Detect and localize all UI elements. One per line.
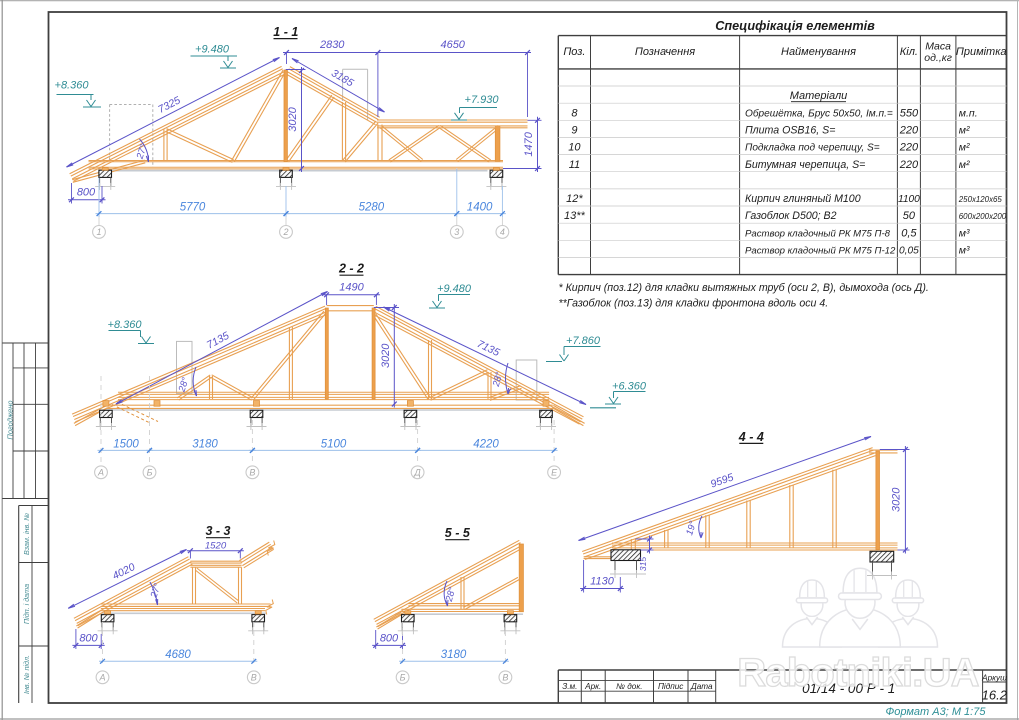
svg-text:А: А xyxy=(98,673,105,683)
svg-text:+7.930: +7.930 xyxy=(465,94,500,106)
svg-text:А: А xyxy=(97,468,104,478)
svg-text:В: В xyxy=(249,468,255,478)
svg-text:3180: 3180 xyxy=(441,649,467,661)
svg-text:Позначення: Позначення xyxy=(635,46,695,58)
svg-text:50: 50 xyxy=(903,210,916,222)
svg-text:од.,кг: од.,кг xyxy=(924,52,952,64)
svg-text:5 - 5: 5 - 5 xyxy=(445,526,471,540)
svg-text:Погоджено: Погоджено xyxy=(5,400,14,439)
svg-text:Маса: Маса xyxy=(925,41,951,53)
svg-text:13**: 13** xyxy=(564,210,586,222)
svg-text:Формат А3; М 1:75: Формат А3; М 1:75 xyxy=(886,706,987,718)
svg-text:3020: 3020 xyxy=(891,487,903,512)
svg-text:Rabotniki.UA: Rabotniki.UA xyxy=(737,651,979,695)
svg-text:2 - 2: 2 - 2 xyxy=(338,262,364,276)
svg-text:0,05: 0,05 xyxy=(899,246,919,257)
svg-text:5100: 5100 xyxy=(321,438,347,450)
svg-text:Газоблок D500; В2: Газоблок D500; В2 xyxy=(745,210,837,222)
svg-text:* Кирпич (поз.12) для кладки в: * Кирпич (поз.12) для кладки вытяжных тр… xyxy=(559,282,929,294)
svg-text:Підпис: Підпис xyxy=(658,682,683,691)
svg-text:10: 10 xyxy=(568,142,581,154)
svg-text:Раствор кладочный РК М75 П-8: Раствор кладочный РК М75 П-8 xyxy=(745,228,891,239)
svg-text:+7.860: +7.860 xyxy=(566,335,601,347)
svg-text:550: 550 xyxy=(900,107,919,119)
svg-text:Підп. і дата: Підп. і дата xyxy=(22,584,31,624)
svg-text:м³: м³ xyxy=(959,245,970,257)
svg-text:1500: 1500 xyxy=(113,438,139,450)
svg-text:0,5: 0,5 xyxy=(901,227,917,239)
svg-text:4650: 4650 xyxy=(440,39,465,51)
svg-text:4: 4 xyxy=(500,227,505,237)
svg-text:Аркуш: Аркуш xyxy=(981,674,1007,683)
svg-text:220: 220 xyxy=(899,142,919,154)
svg-text:1490: 1490 xyxy=(339,281,364,293)
svg-text:3020: 3020 xyxy=(380,343,392,368)
svg-text:Взам. інв. №: Взам. інв. № xyxy=(22,513,31,555)
svg-text:1 - 1: 1 - 1 xyxy=(273,25,298,39)
svg-text:м²: м² xyxy=(959,142,970,154)
svg-text:+8.360: +8.360 xyxy=(108,319,143,331)
svg-text:Б: Б xyxy=(147,468,153,478)
svg-text:5280: 5280 xyxy=(359,202,385,214)
svg-text:Обрешётка, Брус 50х50, Iм.п.=: Обрешётка, Брус 50х50, Iм.п.= xyxy=(745,107,893,119)
svg-text:5770: 5770 xyxy=(180,202,206,214)
svg-text:+9.480: +9.480 xyxy=(195,44,230,56)
svg-text:**Газоблок (поз.13) для кладки: **Газоблок (поз.13) для кладки фронтона … xyxy=(559,298,829,310)
svg-text:Б: Б xyxy=(400,673,406,683)
svg-text:+8.360: +8.360 xyxy=(55,80,90,92)
svg-text:11: 11 xyxy=(569,159,580,171)
svg-text:4220: 4220 xyxy=(473,438,499,450)
svg-text:600х200х200: 600х200х200 xyxy=(959,212,1007,221)
svg-text:Інв. № підл.: Інв. № підл. xyxy=(22,655,31,694)
svg-text:2830: 2830 xyxy=(319,39,345,51)
svg-text:Битумная черепица, S=: Битумная черепица, S= xyxy=(745,159,865,171)
svg-text:1100: 1100 xyxy=(898,194,920,205)
svg-text:1130: 1130 xyxy=(590,575,615,587)
svg-text:3: 3 xyxy=(454,227,459,237)
svg-text:+9.480: +9.480 xyxy=(437,283,472,295)
svg-text:Арк.: Арк. xyxy=(584,682,601,691)
svg-text:Плита ОSB16, S=: Плита ОSB16, S= xyxy=(745,125,835,137)
svg-text:3180: 3180 xyxy=(192,438,218,450)
svg-text:Кіл.: Кіл. xyxy=(900,46,918,58)
svg-text:м.п.: м.п. xyxy=(959,107,978,119)
svg-text:800: 800 xyxy=(79,632,98,644)
svg-text:4680: 4680 xyxy=(165,649,191,661)
svg-text:2: 2 xyxy=(282,227,288,237)
svg-text:№ док.: № док. xyxy=(616,682,642,691)
svg-text:м²: м² xyxy=(959,125,970,137)
svg-text:12*: 12* xyxy=(566,193,583,205)
svg-text:4 - 4: 4 - 4 xyxy=(738,430,764,444)
svg-text:+6.360: +6.360 xyxy=(612,381,647,393)
svg-text:Поз.: Поз. xyxy=(563,46,585,58)
svg-text:Подкладка под черепицу, S=: Подкладка под черепицу, S= xyxy=(745,143,880,154)
svg-text:220: 220 xyxy=(899,159,919,171)
svg-text:250х120х65: 250х120х65 xyxy=(958,195,1003,204)
svg-text:В: В xyxy=(502,673,508,683)
svg-text:м²: м² xyxy=(959,159,970,171)
svg-text:1470: 1470 xyxy=(523,131,535,156)
svg-text:З.м.: З.м. xyxy=(562,682,577,691)
svg-text:Специфікація елементів: Специфікація елементів xyxy=(715,19,875,33)
svg-text:315: 315 xyxy=(638,557,648,571)
svg-text:800: 800 xyxy=(380,632,399,644)
svg-text:220: 220 xyxy=(899,125,919,137)
svg-text:9: 9 xyxy=(571,125,577,137)
svg-text:3020: 3020 xyxy=(287,106,299,131)
svg-text:м³: м³ xyxy=(959,227,970,239)
svg-text:1400: 1400 xyxy=(467,202,493,214)
svg-text:1: 1 xyxy=(96,227,101,237)
svg-text:В: В xyxy=(251,673,257,683)
svg-text:Матеріали: Матеріали xyxy=(790,90,848,102)
svg-text:Дата: Дата xyxy=(690,682,713,691)
svg-text:16.2: 16.2 xyxy=(982,688,1008,703)
svg-text:Раствор кладочный РК М75 П-12: Раствор кладочный РК М75 П-12 xyxy=(745,246,896,257)
svg-text:Примітка: Примітка xyxy=(956,46,1007,58)
svg-text:800: 800 xyxy=(77,187,96,199)
svg-text:Кирпич глиняный М100: Кирпич глиняный М100 xyxy=(745,193,861,205)
svg-text:Найменування: Найменування xyxy=(781,46,856,58)
svg-text:8: 8 xyxy=(571,107,578,119)
svg-text:Д: Д xyxy=(413,468,421,478)
svg-text:3 - 3: 3 - 3 xyxy=(205,524,230,538)
svg-text:Е: Е xyxy=(551,468,558,478)
svg-text:1520: 1520 xyxy=(205,540,227,551)
